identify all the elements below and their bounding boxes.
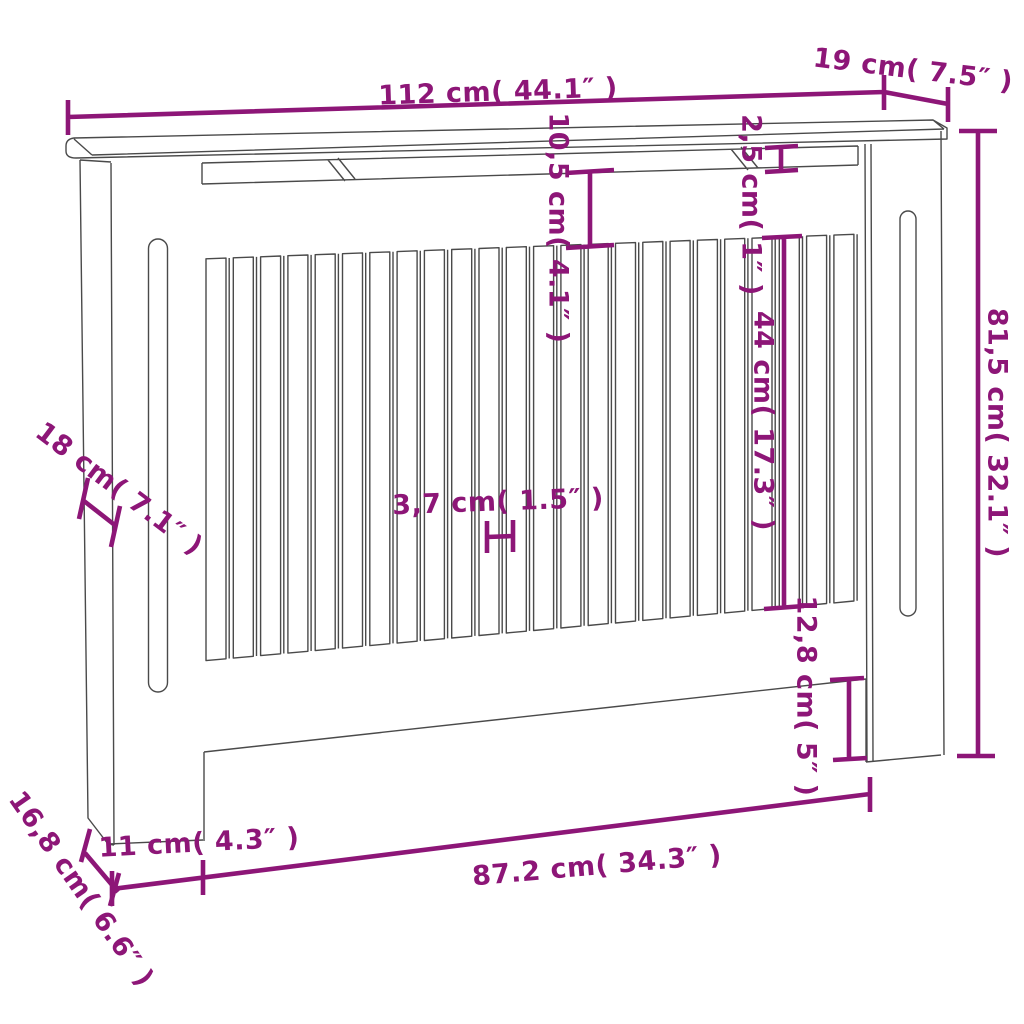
left-panel-slot	[149, 239, 168, 692]
diagram-canvas: 112 cm( 44.1″ ) 19 cm( 7.5″ ) 10,5 cm( 4…	[0, 0, 1024, 1024]
dim-label-height: 81,5 cm( 32.1″ )	[982, 308, 1013, 558]
dim-label-leg-height: 12,8 cm( 5″ )	[791, 596, 822, 797]
dim-label-rail-thickness: 2,5 cm( 1″ )	[736, 114, 767, 296]
right-side-panel	[865, 131, 944, 762]
dim-top-depth-marker	[884, 87, 948, 122]
bottom-section	[204, 679, 941, 841]
dim-label-slat-length: 44 cm( 17.3″ )	[748, 311, 779, 531]
top-shelf	[66, 120, 947, 158]
dim-slat-pitch-marker	[487, 520, 513, 553]
right-panel-slot	[900, 211, 916, 616]
dim-label-rail-gap: 10,5 cm( 4.1″ )	[543, 112, 574, 343]
dim-leg-height-marker	[830, 678, 867, 760]
